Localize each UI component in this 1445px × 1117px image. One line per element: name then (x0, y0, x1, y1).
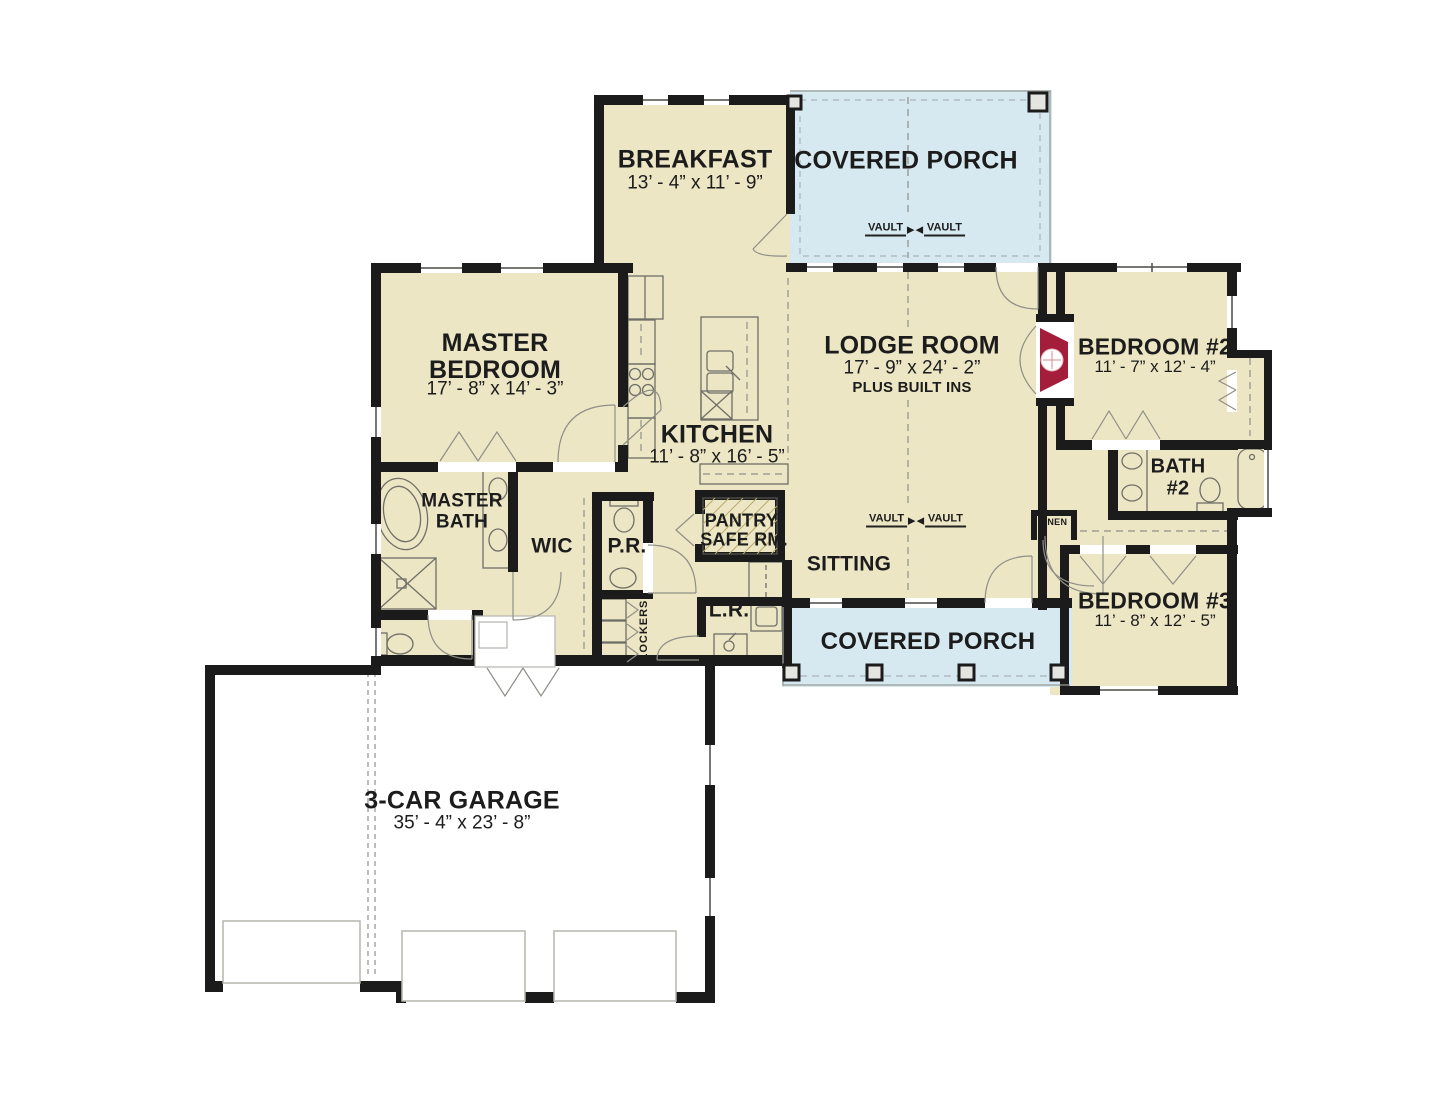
pantry-label-line1: PANTRY/ (700, 512, 788, 531)
bedroom2-label: BEDROOM #2 (1078, 335, 1232, 360)
breakfast-label: BREAKFAST (618, 147, 773, 174)
bath2-label-line1: BATH (1151, 456, 1206, 478)
garage-door-2 (402, 931, 525, 1001)
vault-arrow-left-icon: ◀ (917, 517, 924, 526)
bedroom2-dims: 11’ - 7” x 12’ - 4” (1094, 358, 1215, 376)
bath2-label-line2: #2 (1151, 478, 1206, 500)
bath2-label: BATH #2 (1151, 456, 1206, 499)
vault-arrow-right-icon: ▶ (908, 517, 915, 526)
lockers-label: LOCKERS (639, 600, 651, 661)
pantry-label: PANTRY/ SAFE RM. (700, 512, 788, 551)
garage-dims: 35’ - 4” x 23’ - 8” (394, 814, 531, 835)
lodge-room-note: PLUS BUILT INS (852, 380, 971, 396)
garage-door-3 (554, 931, 676, 1001)
vault-label: VAULT (924, 222, 965, 237)
vault-arrow-left-icon: ◀ (916, 226, 923, 235)
garage-entry-alcove (475, 616, 555, 667)
garage-door-1 (223, 921, 360, 983)
vault-label: VAULT (925, 513, 966, 528)
lodge-room-label: LODGE ROOM (824, 333, 1000, 360)
floor-plan: BREAKFAST 13’ - 4” x 11’ - 9” COVERED PO… (0, 0, 1445, 1117)
breakfast-dims: 13’ - 4” x 11’ - 9” (627, 174, 763, 195)
bedroom3-label: BEDROOM #3 (1078, 589, 1232, 614)
covered-porch-top-label: COVERED PORCH (794, 148, 1017, 175)
linen-label: LINEN (1039, 518, 1068, 528)
kitchen-label: KITCHEN (661, 422, 774, 449)
pantry-label-line2: SAFE RM. (700, 531, 788, 550)
vault-arrow-right-icon: ▶ (907, 226, 914, 235)
laundry-label: L.R. (709, 600, 749, 623)
lodge-room-dims: 17’ - 9” x 24’ - 2” (844, 359, 981, 380)
wic-label: WIC (531, 536, 572, 559)
covered-porch-bottom-label: COVERED PORCH (821, 629, 1036, 655)
garage-label: 3-CAR GARAGE (364, 788, 559, 815)
master-bath-label: MASTER BATH (412, 491, 512, 532)
master-bedroom-label: MASTER BEDROOM (395, 330, 595, 384)
covered-porch-top-area (790, 90, 1052, 267)
sitting-label: SITTING (807, 554, 891, 577)
bedroom3-dims: 11’ - 8” x 12’ - 5” (1094, 612, 1215, 630)
powder-room-label: P.R. (608, 536, 647, 559)
vault-annotation-bottom: VAULT ▶ ◀ VAULT (866, 513, 966, 528)
vault-annotation-top: VAULT ▶ ◀ VAULT (865, 222, 965, 237)
master-bedroom-dims: 17’ - 8” x 14’ - 3” (427, 380, 564, 401)
vault-label: VAULT (866, 513, 907, 528)
vault-label: VAULT (865, 222, 906, 237)
kitchen-dims: 11’ - 8” x 16’ - 5” (649, 448, 785, 469)
